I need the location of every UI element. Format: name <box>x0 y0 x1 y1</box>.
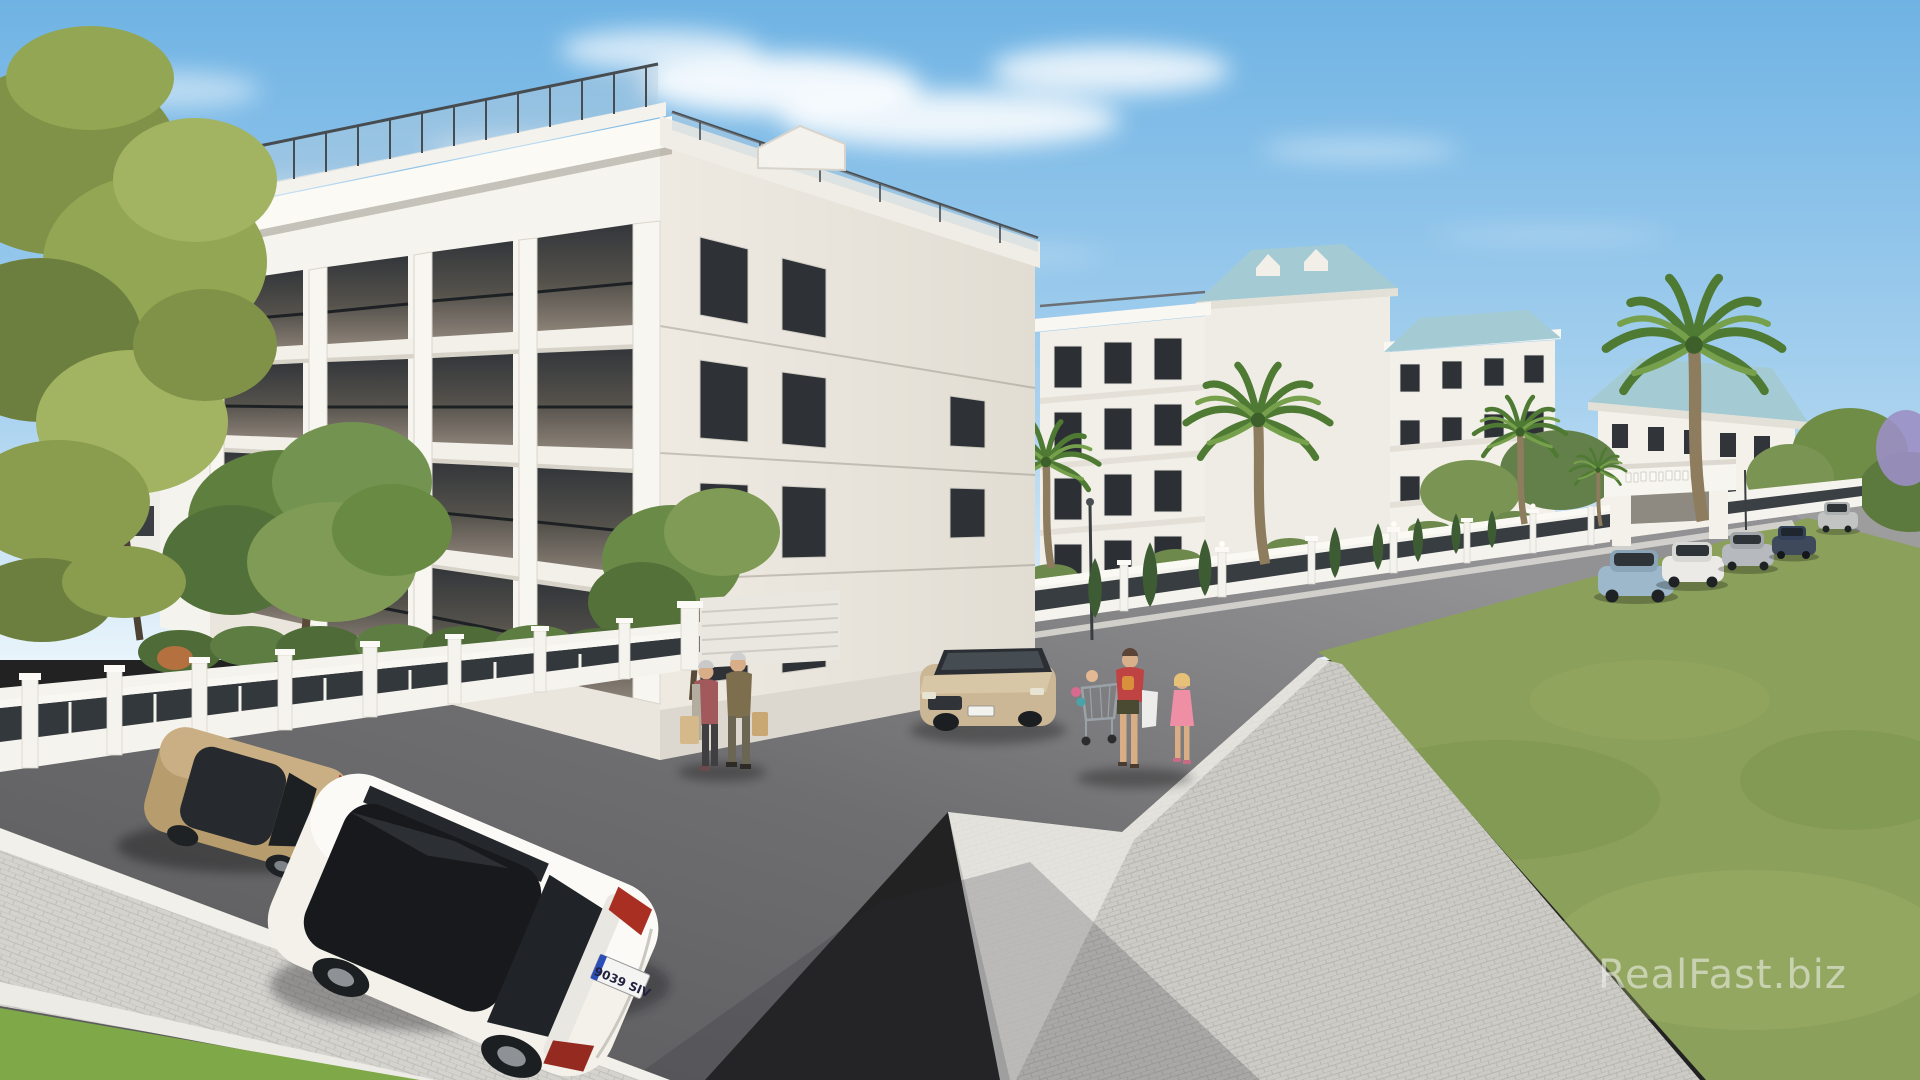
watermark: RealFast.biz <box>1598 952 1847 998</box>
architectural-rendering: 9039 SIV <box>0 0 1920 1080</box>
garage-door <box>700 590 840 668</box>
toddler <box>1086 670 1098 682</box>
